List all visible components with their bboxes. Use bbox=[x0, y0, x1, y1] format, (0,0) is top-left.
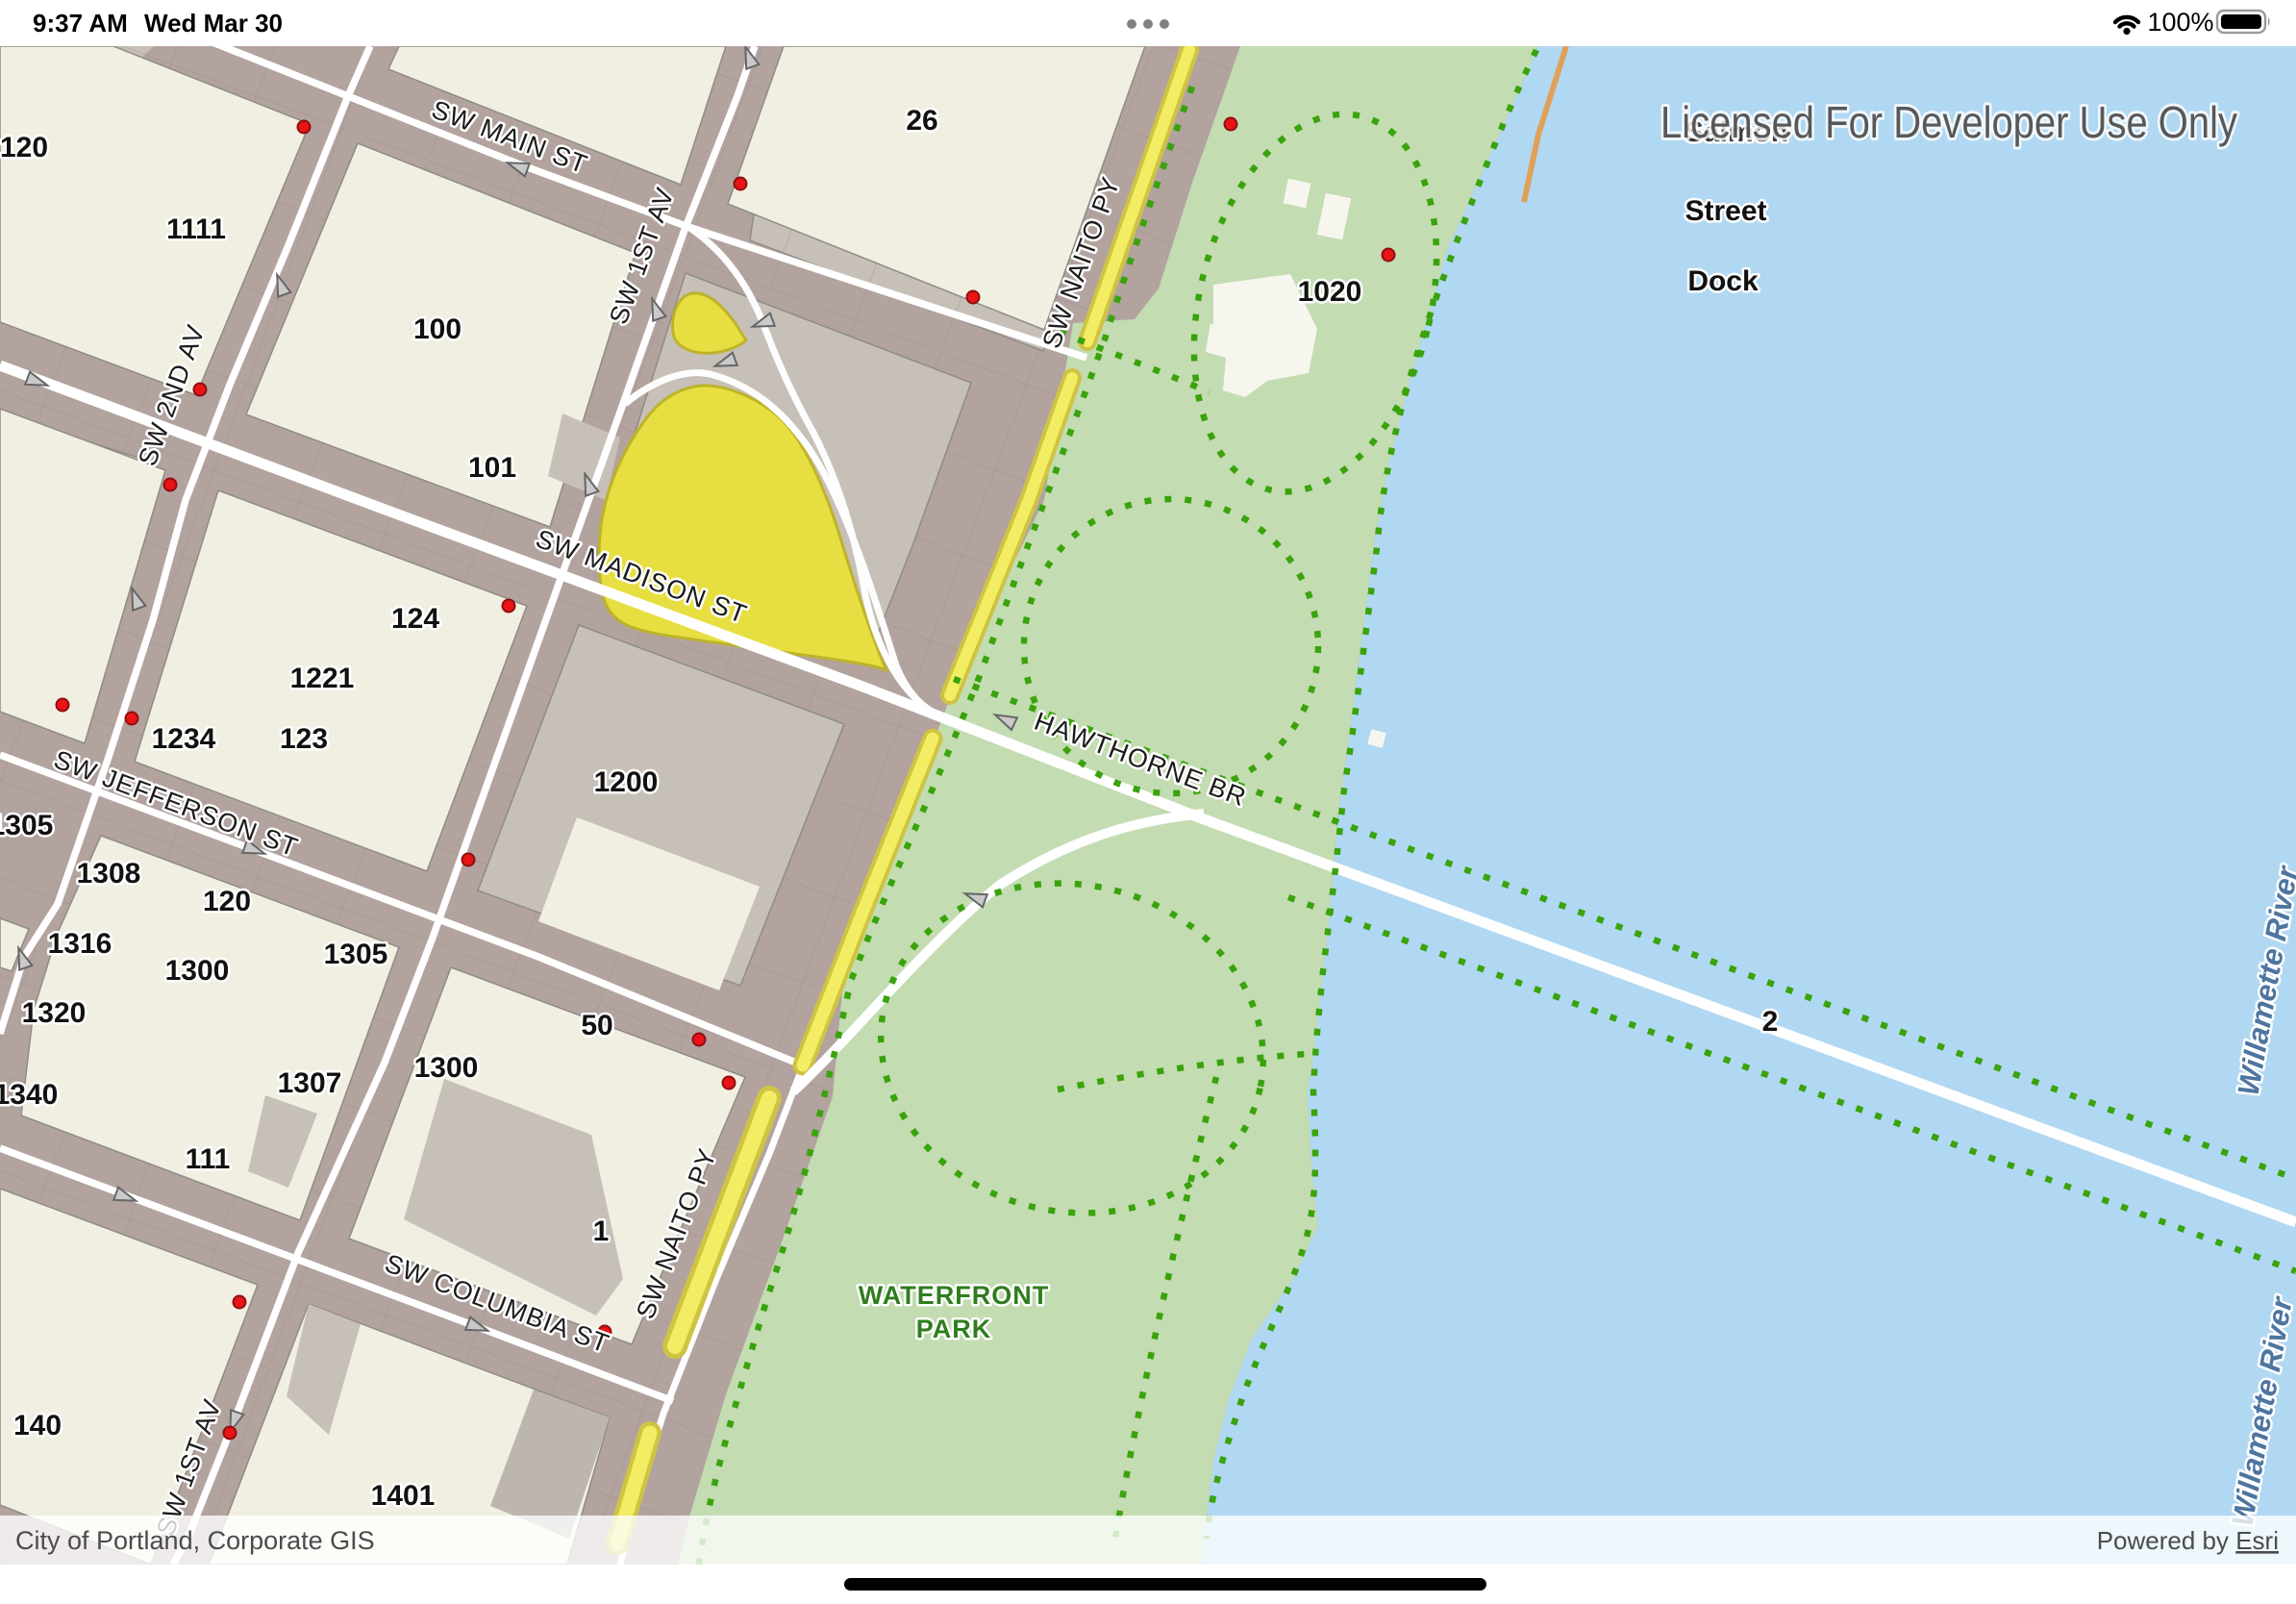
svg-text:WATERFRONT: WATERFRONT bbox=[859, 1281, 1049, 1310]
svg-text:100%: 100% bbox=[2147, 8, 2213, 37]
svg-text:100: 100 bbox=[413, 313, 462, 345]
svg-text:1234: 1234 bbox=[152, 723, 216, 755]
svg-text:1340: 1340 bbox=[0, 1079, 58, 1111]
svg-text:124: 124 bbox=[391, 603, 439, 635]
svg-text:1316: 1316 bbox=[48, 928, 112, 960]
svg-text:1401: 1401 bbox=[371, 1480, 436, 1512]
svg-text:123: 123 bbox=[280, 723, 328, 755]
svg-text:Powered by Esri: Powered by Esri bbox=[2097, 1526, 2279, 1555]
svg-text:2: 2 bbox=[1762, 1006, 1779, 1038]
svg-text:1320: 1320 bbox=[22, 997, 87, 1029]
svg-text:1020: 1020 bbox=[1298, 276, 1362, 308]
svg-text:120: 120 bbox=[203, 886, 251, 917]
svg-text:City of Portland, Corporate GI: City of Portland, Corporate GIS bbox=[15, 1526, 375, 1555]
svg-text:Wed Mar 30: Wed Mar 30 bbox=[144, 9, 283, 38]
svg-text:Street: Street bbox=[1685, 195, 1766, 227]
svg-text:101: 101 bbox=[468, 452, 516, 484]
svg-text:1111: 1111 bbox=[166, 213, 226, 245]
svg-text:1300: 1300 bbox=[414, 1052, 479, 1084]
svg-text:26: 26 bbox=[906, 105, 937, 137]
svg-text:1308: 1308 bbox=[77, 858, 141, 890]
svg-text:111: 111 bbox=[186, 1143, 231, 1175]
svg-text:120: 120 bbox=[0, 132, 48, 163]
svg-text:1: 1 bbox=[593, 1216, 610, 1247]
svg-text:1300: 1300 bbox=[165, 955, 230, 987]
svg-text:9:37 AM: 9:37 AM bbox=[33, 9, 128, 38]
svg-text:50: 50 bbox=[581, 1010, 612, 1041]
svg-text:1200: 1200 bbox=[594, 766, 659, 798]
svg-text:1305: 1305 bbox=[0, 810, 53, 841]
svg-text:140: 140 bbox=[13, 1410, 62, 1441]
svg-text:1307: 1307 bbox=[278, 1067, 342, 1099]
svg-text:1221: 1221 bbox=[290, 663, 355, 694]
svg-text:Dock: Dock bbox=[1687, 265, 1759, 297]
svg-text:PARK: PARK bbox=[916, 1315, 992, 1343]
svg-text:Licensed For Developer Use Onl: Licensed For Developer Use Only bbox=[1660, 97, 2237, 147]
svg-text:1305: 1305 bbox=[324, 939, 388, 970]
